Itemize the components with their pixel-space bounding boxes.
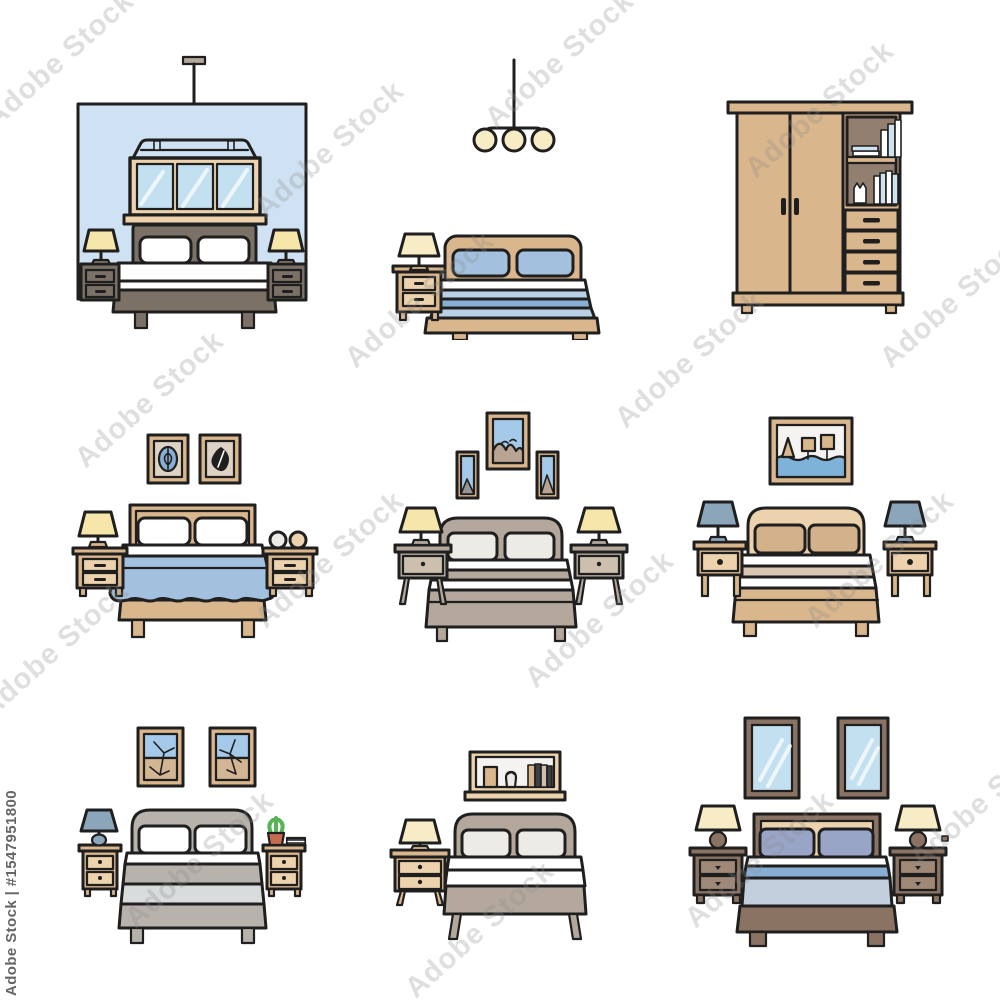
picture-frame-egg	[148, 435, 188, 483]
lamp-left	[81, 810, 117, 846]
nightstand-right	[263, 845, 305, 896]
lamp-left	[400, 820, 440, 850]
icon-wardrobe	[650, 40, 960, 340]
potted-plant	[268, 818, 284, 845]
pendant-light	[474, 60, 554, 151]
bed	[110, 505, 273, 637]
icon-bed-seascape-picture	[650, 390, 960, 690]
lamp-right	[578, 508, 620, 545]
lamp-left	[400, 508, 442, 545]
bed	[425, 236, 599, 340]
bed	[737, 814, 897, 946]
wardrobe-drawers	[845, 210, 898, 293]
lamp-right	[896, 806, 948, 848]
stock-illustration-canvas: Adobe Stock Adobe Stock Adobe Stock Adob…	[0, 0, 1000, 1000]
icon-bed-wall-shelf	[345, 690, 655, 990]
icon-bed-two-landscape-pictures	[37, 690, 347, 990]
nightstand-right	[268, 264, 306, 300]
lamp-right	[885, 502, 925, 542]
icon-bedroom-blue-wall-window	[37, 40, 347, 340]
wall-shelf	[465, 752, 565, 800]
nightstand-left	[395, 545, 451, 604]
nightstand-right	[890, 848, 946, 903]
bed	[113, 225, 276, 328]
nightstand-right	[884, 542, 936, 596]
picture-frame-leaf	[200, 435, 240, 483]
bed	[444, 814, 586, 939]
nightstand-left	[79, 845, 121, 896]
icon-bed-with-pendant-lights	[345, 40, 655, 340]
nightstand-right	[263, 548, 317, 596]
picture-frame-seascape	[770, 418, 852, 484]
nightstand-left	[694, 542, 746, 596]
nightstand-right	[571, 545, 627, 604]
icon-bed-three-pictures	[345, 390, 655, 690]
lamp-left	[696, 806, 740, 848]
wardrobe-shelves	[847, 117, 901, 205]
icon-bed-blue-blanket-two-pictures	[37, 390, 347, 690]
lamp-left	[698, 502, 738, 542]
mirror-left	[745, 718, 799, 798]
wardrobe-base	[733, 293, 903, 313]
nightstand-left	[690, 848, 746, 903]
lamp-left	[79, 512, 117, 548]
icon-bed-two-mirrors	[650, 690, 960, 990]
book	[287, 838, 305, 845]
nightstand-left	[391, 850, 449, 905]
bed	[426, 518, 576, 641]
picture-frame-left	[457, 452, 478, 498]
nightstand-left	[73, 548, 127, 596]
picture-frame-landscape-1	[138, 728, 183, 786]
picture-frame-right	[537, 452, 558, 498]
blue-blanket	[110, 556, 273, 601]
watermark-asset-id: Adobe Stock | #1547951800	[3, 758, 20, 996]
picture-frame-center	[487, 413, 529, 469]
nightstand-left	[81, 264, 119, 300]
decor-balls	[270, 532, 306, 548]
picture-frame-landscape-2	[210, 728, 255, 786]
bed	[733, 508, 879, 636]
mirror-right	[838, 718, 888, 798]
bed	[119, 810, 266, 943]
nightstand-left	[393, 266, 445, 320]
